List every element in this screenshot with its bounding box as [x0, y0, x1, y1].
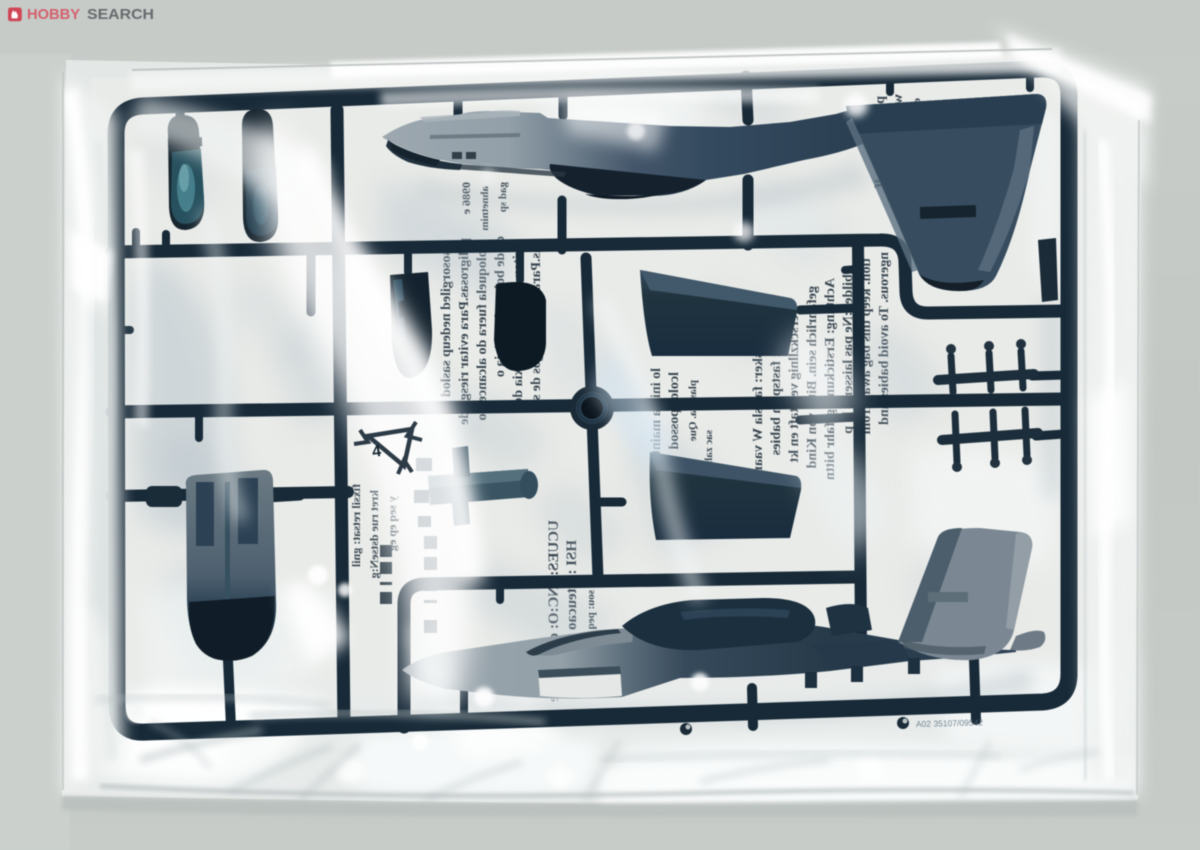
- svg-text:SEARCH: SEARCH: [87, 6, 154, 23]
- svg-text:kret rue dstseN:g: kret rue dstseN:g: [367, 490, 381, 578]
- svg-text:A02 35107/09542: A02 35107/09542: [916, 717, 984, 729]
- svg-text:HOBBY: HOBBY: [27, 6, 80, 23]
